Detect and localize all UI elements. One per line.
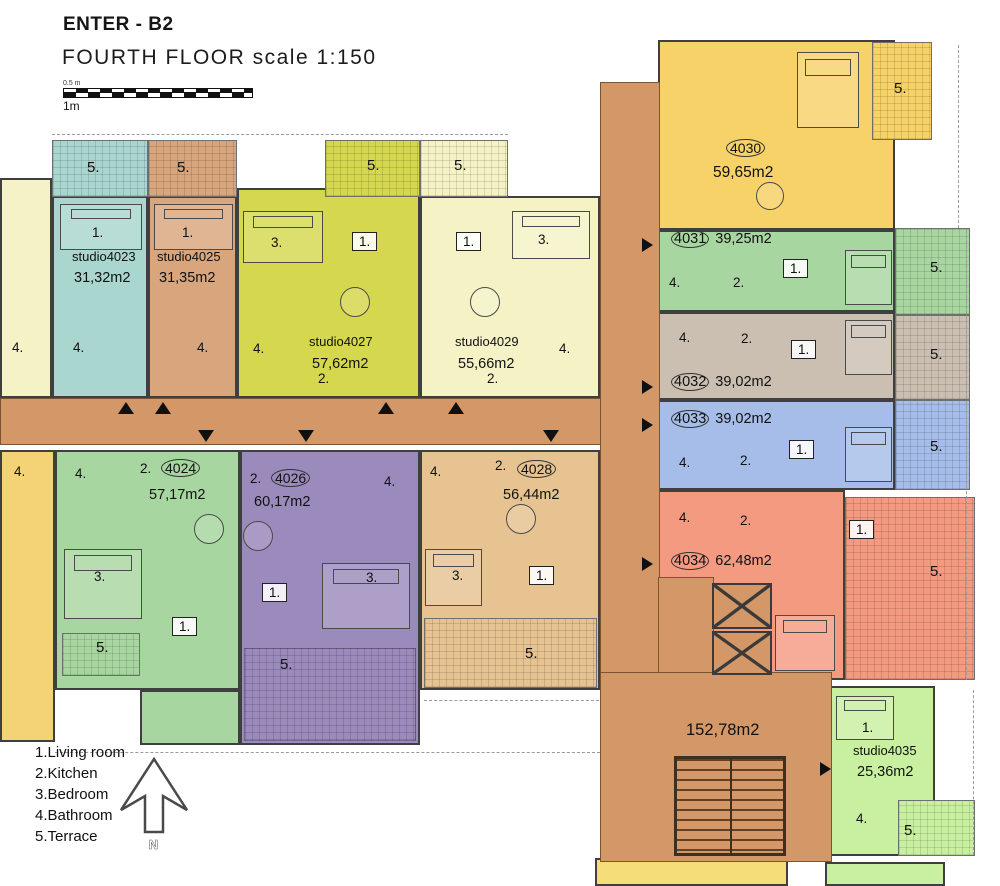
unit-number: 4031 [671,230,709,248]
room-label: 5. [96,639,109,656]
room-label: 4. [679,455,690,470]
entrance-arrow-icon [198,430,214,442]
entrance-arrow-icon [642,557,653,571]
floor-subtitle: FOURTH FLOOR scale 1:150 [62,46,377,70]
room-label: 3. [366,570,377,585]
room-label: 2. [495,458,506,473]
legend: 1.Living room 2.Kitchen 3.Bedroom 4.Bath… [35,742,125,847]
room-label: 1. [352,232,377,251]
room-label: 4. [253,341,264,356]
dining-table [194,514,224,544]
room-label: 4. [384,474,395,489]
terrace-4026 [244,648,416,741]
room-label: 5. [930,346,943,363]
room-label: 5. [930,563,943,580]
room-label: 1. [783,259,808,278]
legend-item: 4.Bathroom [35,805,125,826]
scale-bar-bottom-label: 1m [63,99,253,113]
balcony-rail [55,752,600,753]
room-label: 2. [318,371,329,386]
room-label: 2. [740,513,751,528]
room-label: 4. [679,330,690,345]
unit-left-bottom-partial [0,450,55,742]
floor-plan: studio4023 31,32m2 studio4025 31,35m2 st… [0,0,1000,886]
dining-table [756,182,784,210]
bed [243,211,323,263]
unit-area: 59,65m2 [713,164,773,182]
room-label: 4. [197,340,208,355]
room-label: 4. [679,510,690,525]
balcony-rail [966,230,967,680]
unit-number: 4033 [671,410,709,428]
unit-number: 4034 [671,552,709,570]
room-label: 3. [94,569,105,584]
unit-area: 25,36m2 [857,764,913,780]
unit-area: 39,02m2 [715,374,771,390]
terrace-4025 [148,140,237,197]
unit-label: 403339,02m2 [671,411,772,427]
bed [64,549,142,619]
room-label: 5. [367,157,380,174]
page-title: ENTER - B2 [63,14,174,36]
entrance-arrow-icon [378,402,394,414]
corridor-area: 152,78m2 [686,721,759,740]
bed [797,52,859,128]
scale-bar-row [63,93,253,98]
room-label: 2. [741,331,752,346]
legend-item: 5.Terrace [35,826,125,847]
unit-area: 57,62m2 [312,356,368,372]
unit-bottom-partial-yellow [595,858,788,886]
unit-area: 39,25m2 [715,231,771,247]
dining-table [243,521,273,551]
scale-bar: 0.5 m 1m [63,80,253,113]
room-label: 5. [930,259,943,276]
room-label: 5. [280,656,293,673]
room-label: 1. [791,340,816,359]
unit-name: studio4029 [455,334,519,349]
room-label: 1. [862,720,873,735]
room-label: 4. [14,464,25,479]
staircase [674,756,786,856]
unit-area: 31,32m2 [74,270,130,286]
entrance-arrow-icon [543,430,559,442]
room-label: 3. [452,568,463,583]
unit-label: 403139,25m2 [671,231,772,247]
unit-bottom-partial-green [825,862,945,886]
corridor-horizontal [0,398,660,445]
entrance-arrow-icon [642,418,653,432]
room-label: 1. [456,232,481,251]
unit-area: 62,48m2 [715,553,771,569]
room-label: 1. [172,617,197,636]
unit-number: 4028 [517,460,556,478]
legend-item: 2.Kitchen [35,763,125,784]
unit-area: 31,35m2 [159,270,215,286]
room-label: 1. [529,566,554,585]
room-label: 4. [669,275,680,290]
room-label: 2. [250,471,261,486]
balcony-rail [424,700,599,701]
north-arrow-icon: N [118,756,190,852]
room-label: 4. [856,811,867,826]
unit-left-top-partial [0,178,52,398]
north-label: N [118,837,190,852]
balcony-rail [973,690,974,855]
unit-name: studio4025 [157,249,221,264]
unit-name: studio4027 [309,334,373,349]
unit-label: 403239,02m2 [671,374,772,390]
legend-item: 1.Living room [35,742,125,763]
unit-number: 4032 [671,373,709,391]
unit-4024-extension [140,690,240,745]
unit-number: 4030 [726,139,765,157]
bed [154,204,233,250]
room-label: 1. [182,225,193,240]
room-label: 4. [73,340,84,355]
unit-number: 4026 [271,469,310,487]
room-label: 1. [849,520,874,539]
balcony-rail [52,134,508,135]
room-label: 2. [733,275,744,290]
elevator-shaft [712,583,772,629]
entrance-arrow-icon [820,762,831,776]
room-label: 5. [177,159,190,176]
unit-area: 60,17m2 [254,494,310,510]
unit-area: 56,44m2 [503,487,559,503]
room-label: 1. [92,225,103,240]
elevator-shaft [712,631,772,675]
room-label: 5. [525,645,538,662]
bed [775,615,835,671]
room-label: 2. [487,371,498,386]
bed [845,320,892,375]
room-label: 5. [87,159,100,176]
unit-area: 39,02m2 [715,411,771,427]
room-label: 4. [12,340,23,355]
dining-table [340,287,370,317]
dining-table [470,287,500,317]
legend-item: 3.Bedroom [35,784,125,805]
entrance-arrow-icon [118,402,134,414]
room-label: 5. [904,822,917,839]
bed [845,427,892,482]
room-label: 5. [930,438,943,455]
unit-number: 4024 [161,459,200,477]
balcony-rail [958,45,959,228]
bed [845,250,892,305]
entrance-arrow-icon [642,238,653,252]
scale-bar-top-label: 0.5 m [63,80,253,87]
entrance-arrow-icon [642,380,653,394]
room-label: 5. [454,157,467,174]
unit-name: studio4035 [853,743,917,758]
bed [512,211,590,259]
terrace-4028 [424,618,597,688]
unit-name: studio4023 [72,249,136,264]
entrance-arrow-icon [448,402,464,414]
room-label: 3. [538,232,549,247]
room-label: 2. [140,461,151,476]
room-label: 1. [789,440,814,459]
room-label: 1. [262,583,287,602]
room-label: 4. [559,341,570,356]
room-label: 4. [430,464,441,479]
room-label: 5. [894,80,907,97]
unit-area: 57,17m2 [149,487,205,503]
entrance-arrow-icon [298,430,314,442]
room-label: 3. [271,235,282,250]
dining-table [506,504,536,534]
room-label: 2. [740,453,751,468]
corridor-elevator-bay [658,577,714,680]
room-label: 4. [75,466,86,481]
unit-area: 55,66m2 [458,356,514,372]
entrance-arrow-icon [155,402,171,414]
unit-label: 403462,48m2 [671,553,772,569]
terrace-4023 [52,140,148,197]
